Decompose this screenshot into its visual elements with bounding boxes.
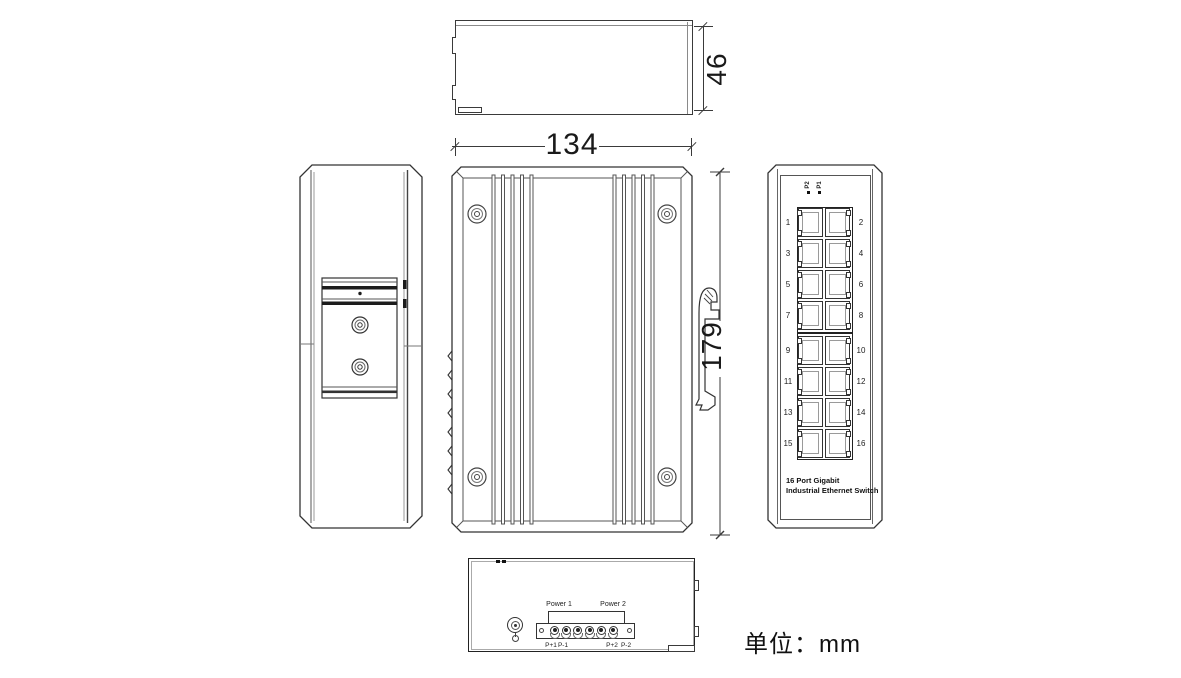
rj45-latch-tab — [846, 358, 851, 364]
rj45-latch-tab — [797, 420, 802, 426]
plate-screw — [352, 359, 368, 375]
rj45-latch-tab — [846, 303, 851, 309]
side-tab — [694, 580, 699, 591]
rj45-latch-tab — [846, 389, 851, 395]
terminal-screw-center — [588, 628, 592, 632]
rj45-latch-tab — [846, 420, 851, 426]
din-rail-plate — [322, 278, 397, 398]
technical-drawing: 46 134 — [0, 0, 1181, 678]
port-number-right: 16 — [854, 439, 868, 448]
rj45-latch-tab — [846, 210, 851, 216]
port-number-left: 11 — [781, 377, 795, 386]
dim-134-value: 134 — [542, 130, 602, 162]
terminal-label-p-minus-2: P-2 — [616, 642, 636, 649]
power2-label: Power 2 — [593, 601, 633, 608]
rj45-port-2 — [825, 208, 850, 237]
rj45-latch-tab — [797, 261, 802, 267]
side-view — [300, 165, 422, 528]
rj45-port-5 — [798, 270, 823, 299]
rj45-port-10 — [825, 336, 850, 365]
plate-screw — [352, 317, 368, 333]
power1-label: Power 1 — [539, 601, 579, 608]
dim-179-value: 179 — [697, 311, 727, 381]
unit-note: 单位：mm — [744, 624, 904, 659]
rj45-port-11 — [798, 367, 823, 396]
rj45-latch-tab — [797, 210, 802, 216]
port-number-right: 10 — [854, 346, 868, 355]
corner-screw — [658, 205, 676, 223]
bracket-hole — [627, 628, 632, 633]
terminal-screw-center — [553, 628, 557, 632]
product-caption-line2: Industrial Ethernet Switch — [786, 486, 880, 496]
rj45-latch-tab — [797, 400, 802, 406]
rj45-latch-tab — [797, 230, 802, 236]
rj45-port-7 — [798, 301, 823, 330]
corner-screw — [468, 205, 486, 223]
side-latch-mark — [403, 299, 407, 308]
port-number-left: 1 — [781, 218, 795, 227]
rj45-latch-tab — [846, 261, 851, 267]
rj45-port-13 — [798, 398, 823, 427]
port-number-right: 12 — [854, 377, 868, 386]
corner-screw — [658, 468, 676, 486]
rj45-port-4 — [825, 239, 850, 268]
rj45-latch-tab — [846, 400, 851, 406]
rj45-latch-tab — [846, 338, 851, 344]
top-view — [455, 20, 693, 115]
rj45-latch-tab — [797, 358, 802, 364]
rj45-port-15 — [798, 429, 823, 458]
top-view-hinge-bump — [452, 37, 456, 54]
rj45-latch-tab — [846, 272, 851, 278]
rj45-latch-tab — [846, 241, 851, 247]
rj45-port-8 — [825, 301, 850, 330]
product-caption-line1: 16 Port Gigabit — [786, 476, 880, 486]
dim-134-line-left — [452, 146, 545, 147]
rj45-port-3 — [798, 239, 823, 268]
rj45-latch-tab — [846, 230, 851, 236]
back-view — [446, 167, 694, 532]
rj45-latch-tab — [846, 292, 851, 298]
plate-pin — [358, 292, 361, 295]
top-edge-mark — [496, 560, 500, 563]
rj45-latch-tab — [797, 241, 802, 247]
top-view-inner-right-line — [687, 22, 688, 114]
terminal-screw-center — [611, 628, 615, 632]
port-number-right: 8 — [854, 311, 868, 320]
terminal-label-p-minus-1: P-1 — [553, 642, 573, 649]
rj45-latch-tab — [797, 338, 802, 344]
front-view: P2 P1 12345678910111213141516 16 Port Gi… — [768, 165, 882, 528]
terminal-screw-center — [576, 628, 580, 632]
top-view-hinge-bump — [452, 85, 456, 100]
port-number-right: 6 — [854, 280, 868, 289]
rj45-port-14 — [825, 398, 850, 427]
ports-container: 12345678910111213141516 — [768, 165, 882, 528]
rj45-latch-tab — [846, 451, 851, 457]
port-number-left: 13 — [781, 408, 795, 417]
rj45-port-16 — [825, 429, 850, 458]
side-latch-mark — [403, 280, 407, 289]
port-number-left: 9 — [781, 346, 795, 355]
top-view-inner-top-line — [456, 25, 692, 26]
ground-symbol-pin — [515, 633, 516, 637]
rj45-latch-tab — [846, 431, 851, 437]
dim-134-line-right — [599, 146, 692, 147]
ground-screw-center — [514, 624, 517, 627]
bracket-hole — [539, 628, 544, 633]
rj45-latch-tab — [797, 292, 802, 298]
side-tab — [694, 626, 699, 637]
rj45-latch-tab — [846, 369, 851, 375]
rj45-port-9 — [798, 336, 823, 365]
rj45-latch-tab — [797, 389, 802, 395]
rj45-port-6 — [825, 270, 850, 299]
port-number-right: 14 — [854, 408, 868, 417]
rj45-latch-tab — [797, 451, 802, 457]
top-edge-mark — [502, 560, 506, 563]
rj45-latch-tab — [846, 323, 851, 329]
rj45-latch-tab — [797, 272, 802, 278]
port-number-left: 3 — [781, 249, 795, 258]
dim-46-value: 46 — [702, 39, 732, 99]
top-view-corner-block — [458, 107, 482, 113]
port-number-right: 2 — [854, 218, 868, 227]
rj45-latch-tab — [797, 369, 802, 375]
port-number-left: 5 — [781, 280, 795, 289]
port-number-left: 15 — [781, 439, 795, 448]
corner-screw — [468, 468, 486, 486]
back-view-outline — [452, 167, 692, 532]
rj45-latch-tab — [797, 303, 802, 309]
rj45-latch-tab — [797, 431, 802, 437]
bottom-view: Power 1 Power 2 P+1 P-1 P+2 P-2 — [468, 558, 695, 652]
port-number-right: 4 — [854, 249, 868, 258]
corner-notch — [668, 645, 695, 652]
rj45-port-12 — [825, 367, 850, 396]
rj45-port-1 — [798, 208, 823, 237]
rj45-latch-tab — [797, 323, 802, 329]
port-number-left: 7 — [781, 311, 795, 320]
